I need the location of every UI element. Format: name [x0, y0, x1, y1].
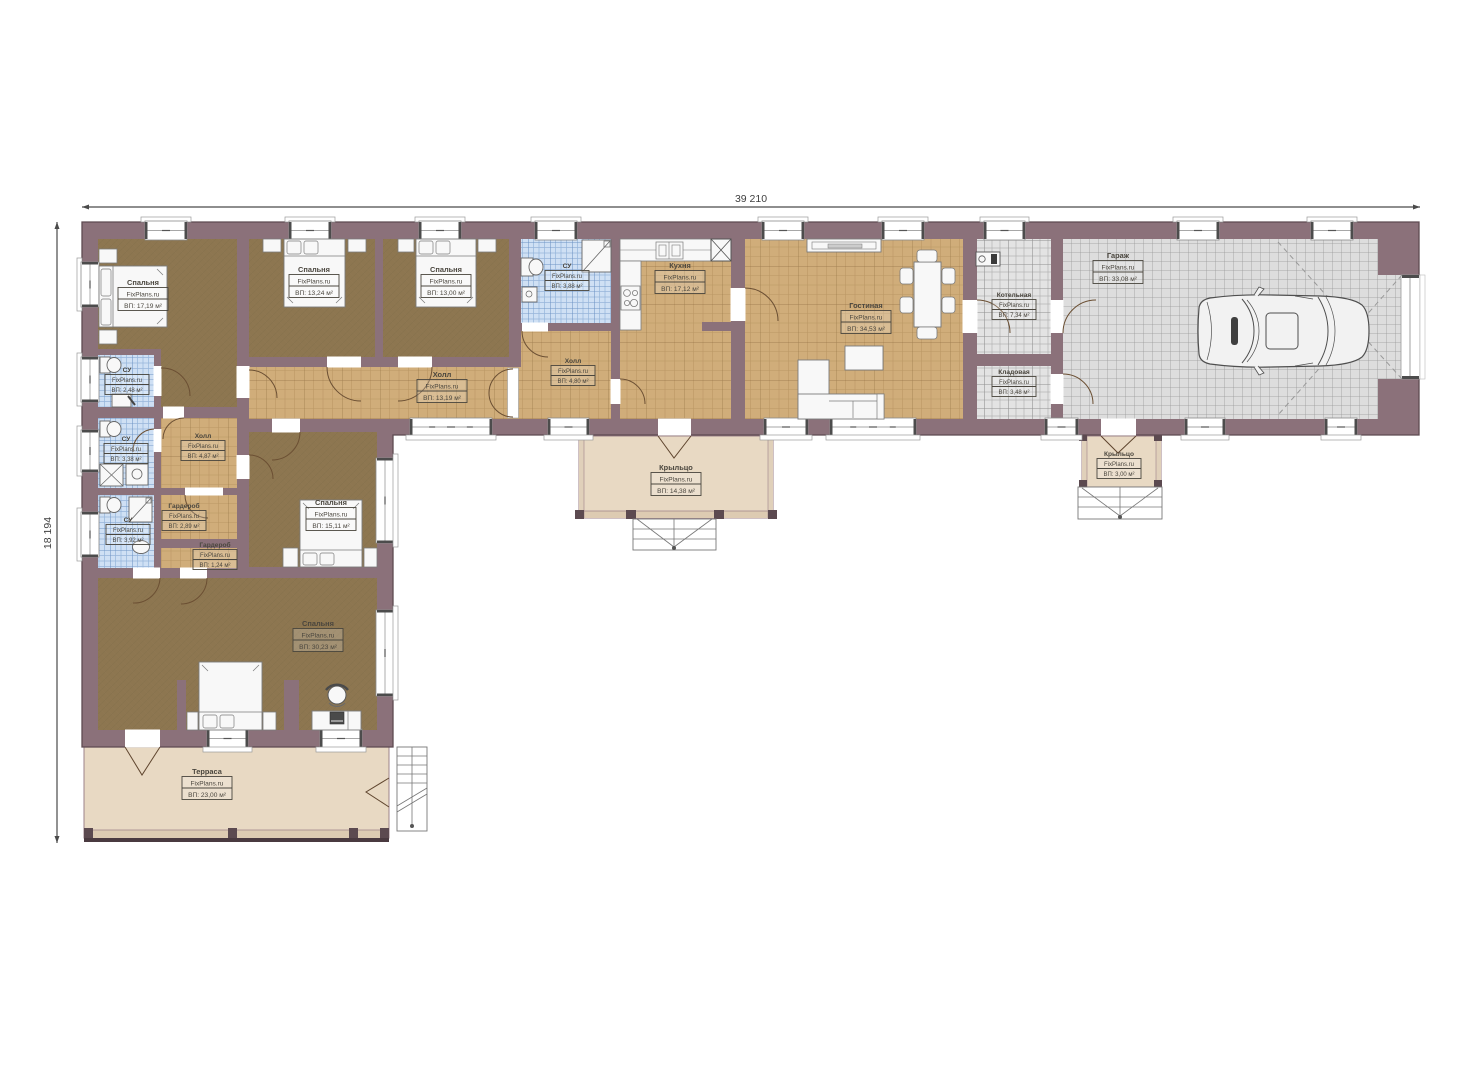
svg-text:FixPlans.ru: FixPlans.ru	[111, 447, 141, 453]
svg-text:Спальня: Спальня	[430, 265, 462, 274]
svg-text:FixPlans.ru: FixPlans.ru	[999, 303, 1029, 309]
svg-text:ВП: 2,48 м²: ВП: 2,48 м²	[111, 388, 142, 394]
svg-text:ВП: 7,34 м²: ВП: 7,34 м²	[998, 313, 1029, 319]
svg-text:Спальня: Спальня	[315, 498, 347, 507]
svg-text:FixPlans.ru: FixPlans.ru	[191, 780, 224, 787]
svg-text:Спальня: Спальня	[302, 619, 334, 628]
svg-text:FixPlans.ru: FixPlans.ru	[298, 278, 331, 285]
svg-text:18 194: 18 194	[42, 517, 54, 549]
svg-text:FixPlans.ru: FixPlans.ru	[169, 514, 199, 520]
svg-text:ВП: 33,08 м²: ВП: 33,08 м²	[1099, 276, 1138, 283]
svg-text:ВП: 23,00 м²: ВП: 23,00 м²	[188, 792, 227, 799]
svg-text:FixPlans.ru: FixPlans.ru	[112, 378, 142, 384]
svg-text:ВП: 3,38 м²: ВП: 3,38 м²	[110, 457, 141, 463]
svg-text:Холл: Холл	[565, 358, 582, 365]
svg-text:ВП: 1,24 м²: ВП: 1,24 м²	[199, 563, 230, 569]
svg-text:FixPlans.ru: FixPlans.ru	[999, 380, 1029, 386]
svg-text:FixPlans.ru: FixPlans.ru	[1104, 462, 1134, 468]
svg-text:ВП: 15,11 м²: ВП: 15,11 м²	[312, 523, 350, 530]
svg-text:СУ: СУ	[122, 436, 132, 443]
svg-text:ВП: 4,87 м²: ВП: 4,87 м²	[187, 454, 218, 460]
svg-text:Гардероб: Гардероб	[199, 541, 230, 549]
svg-text:СУ: СУ	[124, 517, 134, 524]
svg-text:ВП: 34,53 м²: ВП: 34,53 м²	[847, 326, 886, 333]
svg-text:СУ: СУ	[563, 263, 573, 270]
svg-text:ВП: 2,89 м²: ВП: 2,89 м²	[168, 524, 199, 530]
svg-text:ВП: 3,88 м²: ВП: 3,88 м²	[551, 284, 582, 290]
svg-text:ВП: 3,48 м²: ВП: 3,48 м²	[998, 390, 1029, 396]
svg-text:39 210: 39 210	[735, 193, 767, 205]
svg-text:Кладовая: Кладовая	[998, 369, 1030, 376]
svg-text:FixPlans.ru: FixPlans.ru	[315, 511, 348, 518]
svg-text:ВП: 17,12 м²: ВП: 17,12 м²	[661, 286, 700, 293]
svg-text:Крыльцо: Крыльцо	[1104, 451, 1134, 458]
svg-text:FixPlans.ru: FixPlans.ru	[850, 314, 883, 321]
svg-text:Холл: Холл	[195, 433, 212, 440]
svg-text:Холл: Холл	[433, 370, 452, 379]
svg-text:FixPlans.ru: FixPlans.ru	[430, 278, 463, 285]
svg-text:ВП: 30,23 м²: ВП: 30,23 м²	[299, 644, 338, 651]
svg-text:Кухня: Кухня	[669, 261, 691, 270]
svg-text:FixPlans.ru: FixPlans.ru	[302, 632, 335, 639]
svg-text:ВП: 3,00 м²: ВП: 3,00 м²	[1103, 472, 1134, 478]
svg-text:FixPlans.ru: FixPlans.ru	[188, 444, 218, 450]
svg-text:Гостиная: Гостиная	[849, 301, 882, 310]
svg-text:ВП: 13,24 м²: ВП: 13,24 м²	[295, 290, 334, 297]
svg-text:FixPlans.ru: FixPlans.ru	[552, 274, 582, 280]
svg-text:Гардероб: Гардероб	[168, 502, 199, 510]
svg-text:FixPlans.ru: FixPlans.ru	[664, 274, 697, 281]
svg-text:ВП: 4,80 м²: ВП: 4,80 м²	[557, 379, 588, 385]
svg-text:FixPlans.ru: FixPlans.ru	[113, 528, 143, 534]
svg-text:Спальня: Спальня	[127, 278, 159, 287]
svg-text:Гараж: Гараж	[1107, 251, 1130, 260]
svg-text:FixPlans.ru: FixPlans.ru	[558, 369, 588, 375]
svg-text:СУ: СУ	[123, 367, 133, 374]
svg-text:FixPlans.ru: FixPlans.ru	[426, 383, 459, 390]
svg-text:FixPlans.ru: FixPlans.ru	[1102, 264, 1135, 271]
svg-text:FixPlans.ru: FixPlans.ru	[660, 476, 693, 483]
svg-text:FixPlans.ru: FixPlans.ru	[127, 291, 160, 298]
svg-text:Спальня: Спальня	[298, 265, 330, 274]
svg-text:ВП: 13,00 м²: ВП: 13,00 м²	[427, 290, 466, 297]
svg-text:Терраса: Терраса	[192, 767, 223, 776]
svg-text:ВП: 3,92 м²: ВП: 3,92 м²	[112, 538, 143, 544]
svg-text:Крыльцо: Крыльцо	[659, 463, 693, 472]
svg-text:Котельная: Котельная	[997, 292, 1032, 299]
svg-text:ВП: 14,38 м²: ВП: 14,38 м²	[657, 488, 696, 495]
svg-text:FixPlans.ru: FixPlans.ru	[200, 553, 230, 559]
svg-text:ВП: 13,19 м²: ВП: 13,19 м²	[423, 395, 462, 402]
svg-text:ВП: 17,19 м²: ВП: 17,19 м²	[124, 303, 163, 310]
